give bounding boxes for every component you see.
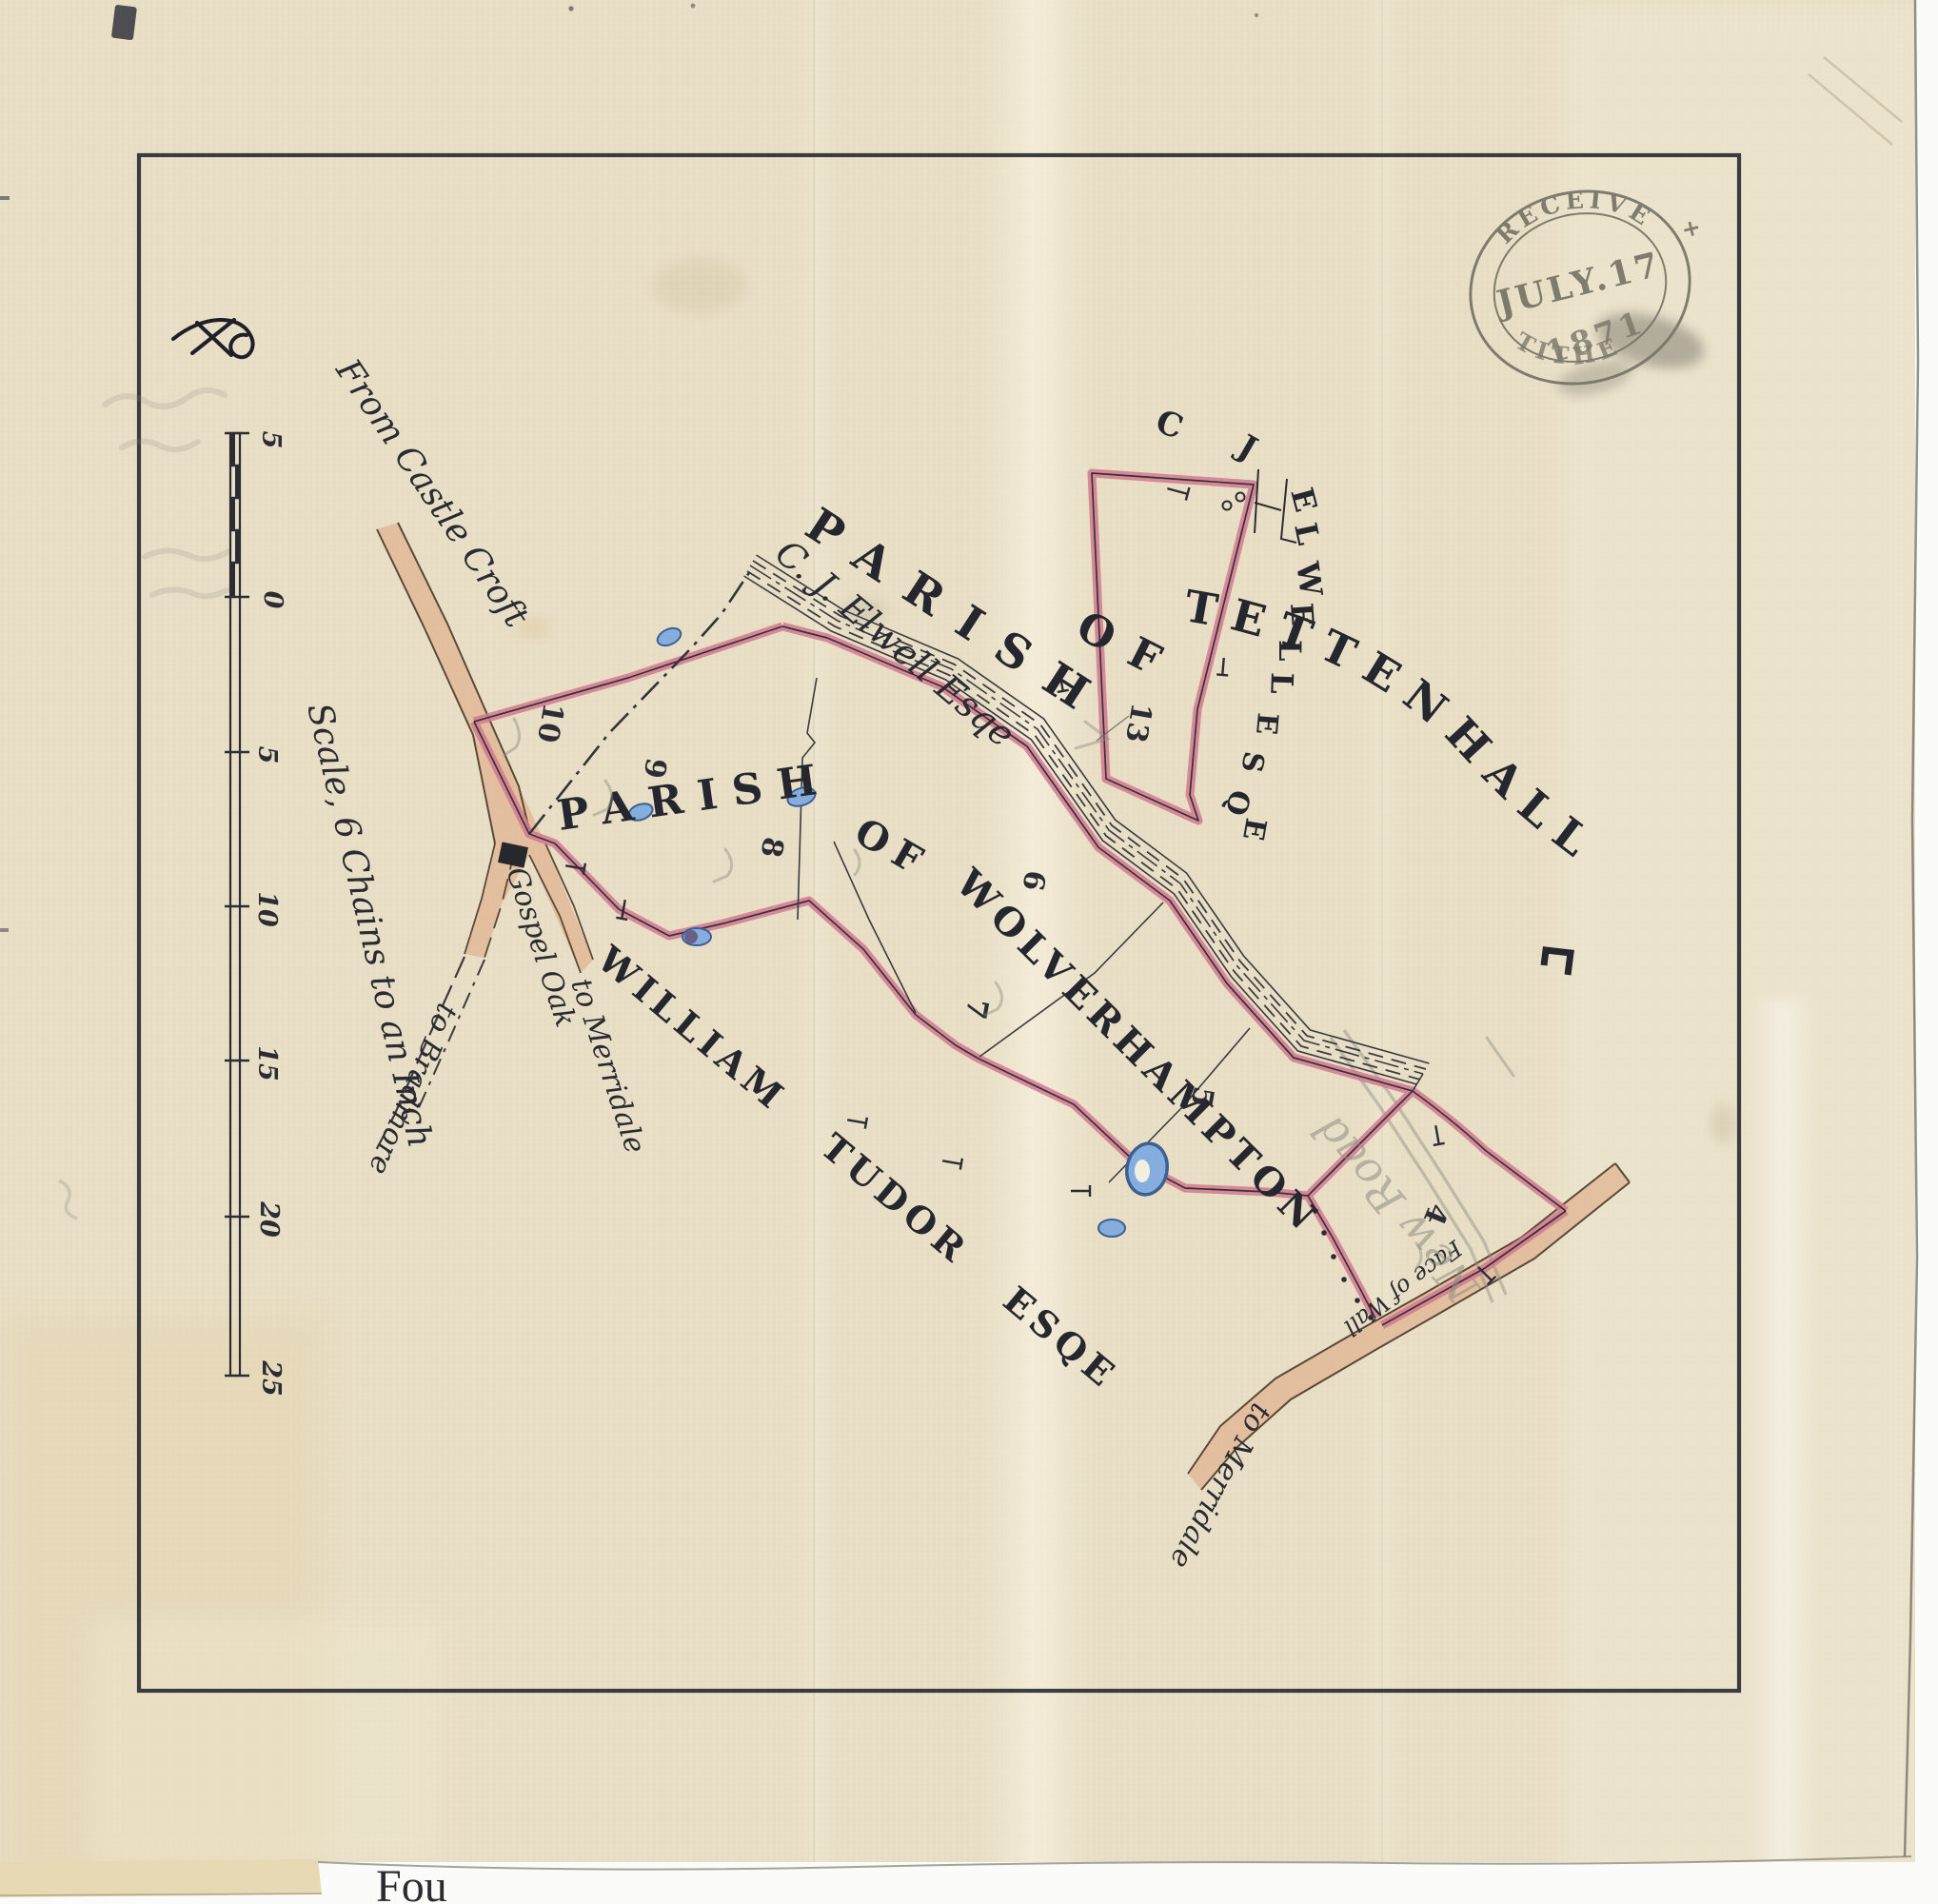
fabric-tongue-bottom-left (0, 1859, 322, 1897)
plot-number-10: 10 (530, 701, 570, 745)
scale-tick-label: 0 (258, 591, 287, 609)
corner-ink-mark (111, 5, 137, 41)
fold-band-left (790, 0, 847, 1904)
scale-tick-label: 5 (256, 431, 286, 449)
sheen-streak-right (1750, 1000, 1816, 1904)
map-canvas: Fou RECEIVED JULY.17 1871 TITHE + (0, 0, 1938, 1904)
scanned-tithe-map: Fou RECEIVED JULY.17 1871 TITHE + (0, 0, 1938, 1904)
scale-tick-label: 25 (256, 1359, 286, 1397)
speck-1 (568, 6, 573, 10)
printed-page-fragment: Fou (376, 1861, 447, 1904)
speck-2 (691, 4, 696, 9)
scale-tick-label: 10 (252, 891, 282, 927)
scale-tick-label: 15 (252, 1045, 282, 1081)
plot-number-13: 13 (1118, 701, 1158, 745)
speck-3 (1255, 13, 1258, 17)
scale-tick-label: 5 (252, 746, 282, 764)
edge-tick-1 (0, 196, 10, 200)
stain-1 (654, 259, 745, 312)
scale-tick-label: 20 (254, 1200, 284, 1238)
fabric-patch-light (90, 1618, 443, 1866)
edge-tick-2 (0, 928, 9, 932)
stain-4 (1710, 1102, 1736, 1144)
